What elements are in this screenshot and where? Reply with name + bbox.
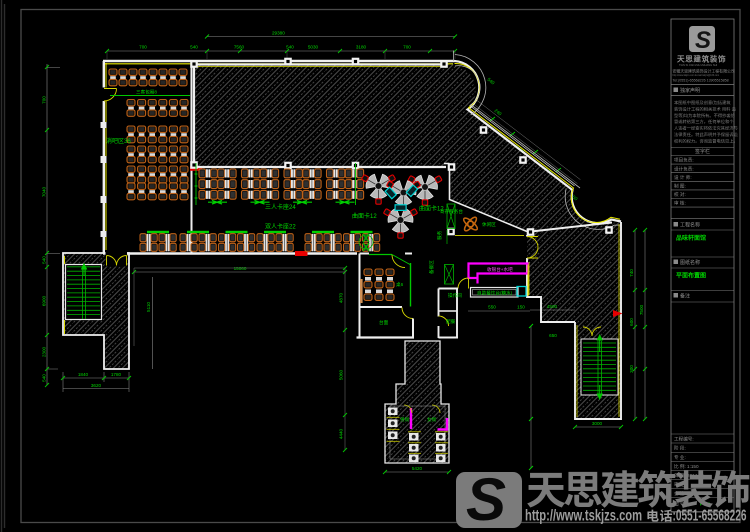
svg-text:7560: 7560 bbox=[234, 45, 245, 50]
svg-text:服务: 服务 bbox=[436, 230, 443, 240]
svg-text:操作间: 操作间 bbox=[448, 292, 462, 299]
svg-text:5420: 5420 bbox=[412, 466, 423, 471]
svg-text:专 业:: 专 业: bbox=[674, 454, 686, 461]
svg-text:曲面卡12: 曲面卡12 bbox=[352, 212, 377, 220]
svg-text:权利的权力。咨询监督电话见上。: 权利的权力。咨询监督电话见上。 bbox=[674, 137, 738, 144]
svg-text:4440: 4440 bbox=[339, 428, 344, 439]
svg-text:冒或转给第三方，任何单位和个: 冒或转给第三方，任何单位和个 bbox=[674, 118, 734, 125]
svg-text:540: 540 bbox=[42, 256, 47, 264]
svg-text:台面: 台面 bbox=[379, 319, 389, 326]
svg-text:29380: 29380 bbox=[272, 31, 285, 36]
svg-text::0551-65568226: :0551-65568226 bbox=[673, 506, 747, 524]
svg-text:540: 540 bbox=[42, 374, 47, 382]
svg-text:700: 700 bbox=[403, 45, 411, 50]
svg-text:5060: 5060 bbox=[339, 369, 344, 380]
svg-text:制 图:: 制 图: bbox=[674, 183, 686, 190]
svg-text:设计负责:: 设计负责: bbox=[674, 165, 694, 172]
svg-text:7040: 7040 bbox=[42, 186, 47, 197]
svg-text:阶 段:: 阶 段: bbox=[674, 445, 686, 452]
svg-text:TIAN SI JIAN ZHU ZHUANG SHI: TIAN SI JIAN ZHU ZHUANG SHI bbox=[679, 63, 717, 67]
svg-text:设 计 师:: 设 计 师: bbox=[674, 174, 692, 181]
svg-text:法律责任。特此声明并予保留诉讼: 法律责任。特此声明并予保留诉讼 bbox=[674, 131, 739, 138]
svg-text:S: S bbox=[695, 27, 711, 54]
svg-text:300: 300 bbox=[629, 365, 634, 373]
svg-text:600: 600 bbox=[629, 318, 634, 326]
svg-text:540: 540 bbox=[286, 45, 294, 50]
svg-text:550: 550 bbox=[488, 305, 496, 310]
svg-text:配餐: 配餐 bbox=[446, 318, 456, 325]
svg-text:3180: 3180 bbox=[356, 45, 367, 50]
svg-text:校 对:: 校 对: bbox=[674, 191, 686, 198]
svg-text:图纸名称: 图纸名称 bbox=[680, 259, 700, 266]
svg-text:桌6: 桌6 bbox=[396, 281, 404, 288]
svg-text:7500: 7500 bbox=[639, 304, 644, 315]
svg-text:收银台+水吧: 收银台+水吧 bbox=[487, 266, 513, 273]
svg-text:4870: 4870 bbox=[339, 292, 344, 303]
svg-text:工程编号:: 工程编号: bbox=[674, 436, 694, 443]
svg-text:700: 700 bbox=[42, 96, 47, 104]
svg-text:740: 740 bbox=[629, 269, 634, 277]
svg-text:双人卡座22: 双人卡座22 bbox=[265, 223, 296, 231]
svg-text:独家声明: 独家声明 bbox=[680, 87, 700, 94]
svg-text:150: 150 bbox=[517, 305, 525, 310]
svg-text:审 核:: 审 核: bbox=[674, 200, 686, 207]
svg-text:自助餐饮台(糖水): 自助餐饮台(糖水) bbox=[477, 290, 513, 297]
svg-text:700: 700 bbox=[139, 45, 147, 50]
svg-text:1840: 1840 bbox=[78, 372, 89, 377]
svg-text:平面布置图: 平面布置图 bbox=[676, 272, 706, 280]
svg-text:备注: 备注 bbox=[680, 293, 690, 300]
svg-text:品味轩面馆: 品味轩面馆 bbox=[676, 234, 706, 242]
svg-text:1780: 1780 bbox=[111, 372, 122, 377]
svg-text:3620: 3620 bbox=[91, 383, 102, 388]
svg-text:三客包厢8: 三客包厢8 bbox=[136, 89, 157, 96]
svg-text:工程名称: 工程名称 bbox=[680, 222, 700, 229]
svg-text:人违者一经查实将依法究其经济与: 人违者一经查实将依法究其经济与 bbox=[674, 125, 738, 132]
svg-text:装饰设计工程的相关技术 用料 造: 装饰设计工程的相关技术 用料 造 bbox=[674, 105, 737, 112]
svg-text:650: 650 bbox=[549, 333, 557, 338]
svg-text:S: S bbox=[466, 466, 506, 532]
svg-text:备餐区: 备餐区 bbox=[428, 260, 435, 274]
svg-text:4500: 4500 bbox=[547, 304, 558, 309]
svg-text:本图纸中图纸及创意(包括建筑: 本图纸中图纸及创意(包括建筑 bbox=[674, 99, 731, 106]
svg-text:女厕: 女厕 bbox=[427, 416, 437, 423]
svg-text:休闲区: 休闲区 bbox=[482, 221, 496, 228]
svg-text:http://www.tskjzs.com E-mail:t: http://www.tskjzs.com E-mail:tskjzs@163.… bbox=[673, 74, 720, 77]
svg-text:540: 540 bbox=[190, 45, 198, 50]
svg-text:Tel:(0551)-65568226 139055158: Tel:(0551)-65568226 13905515858 bbox=[673, 79, 729, 83]
svg-text:签字栏: 签字栏 bbox=[695, 148, 710, 155]
svg-text:天思建筑装饰: 天思建筑装饰 bbox=[677, 54, 726, 64]
svg-text:型等)均为本院所有。不得抄袭仿: 型等)均为本院所有。不得抄袭仿 bbox=[674, 112, 736, 119]
svg-text:比 例: 1:150: 比 例: 1:150 bbox=[674, 463, 699, 470]
svg-text:消吧区36: 消吧区36 bbox=[106, 137, 131, 145]
svg-text:安徽天思建筑装饰设计工程有限公司: 安徽天思建筑装饰设计工程有限公司 bbox=[673, 69, 735, 74]
svg-text:2300: 2300 bbox=[42, 346, 47, 357]
svg-text:5110: 5110 bbox=[146, 302, 151, 312]
svg-text:寄存服务台: 寄存服务台 bbox=[440, 208, 463, 215]
svg-text:15060: 15060 bbox=[234, 266, 247, 271]
svg-text:5030: 5030 bbox=[308, 45, 319, 50]
svg-text:三人卡座24: 三人卡座24 bbox=[265, 203, 296, 211]
svg-text:6900: 6900 bbox=[42, 295, 47, 306]
svg-text:项目负责:: 项目负责: bbox=[674, 157, 694, 164]
svg-text:http://www.tskjzs.com: http://www.tskjzs.com bbox=[525, 505, 642, 524]
svg-text:3000: 3000 bbox=[592, 421, 603, 426]
